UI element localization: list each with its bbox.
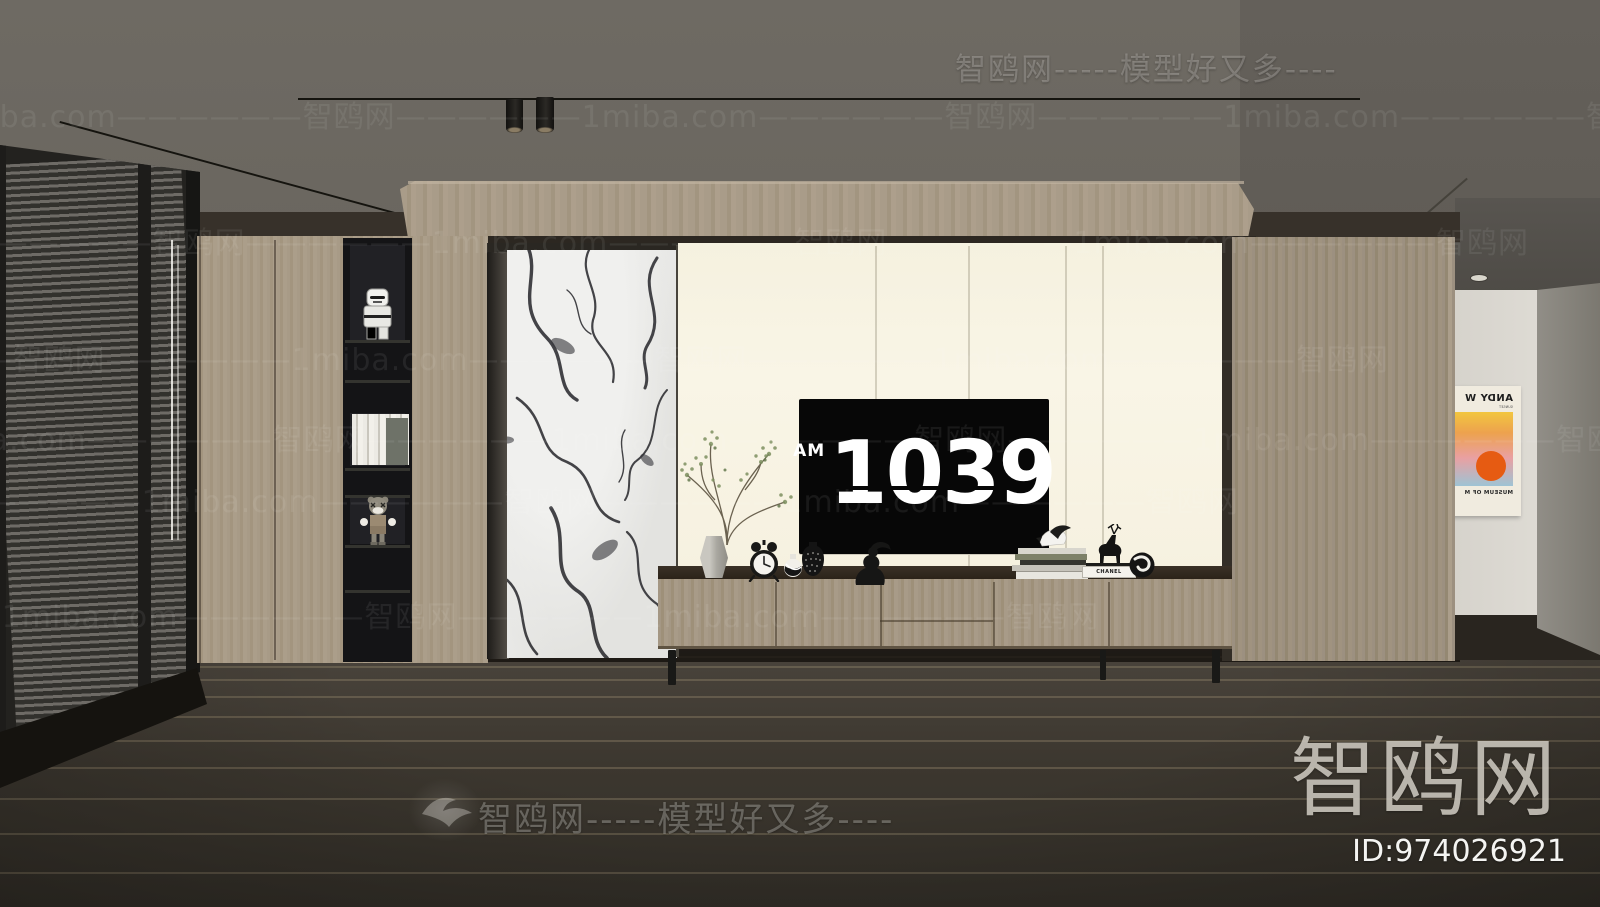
deer-figurine xyxy=(1088,524,1128,566)
model-id-label: ID:974026921 xyxy=(1270,834,1566,869)
seagull-logo-icon xyxy=(418,786,476,836)
watermark-top: 智鸥网-----模型好又多---- xyxy=(955,44,1338,89)
bird-sculpture xyxy=(1036,522,1072,550)
watermark-bottom: 智鸥网-----模型好又多---- xyxy=(478,792,894,841)
sphere-vase xyxy=(783,554,803,578)
cabinet-bottom-edge xyxy=(658,646,1232,649)
watermark-row: 1miba.com——————智鸥网——————1miba.com——————智… xyxy=(0,415,1600,459)
watermark-row: 1miba.com——————智鸥网——————1miba.com——————智… xyxy=(0,477,1239,521)
site-logo-text: 智鸥网 xyxy=(1280,733,1560,825)
hallway-downlight xyxy=(1470,274,1488,282)
watermark-row: 1miba.com——————智鸥网——————1miba.com——————智… xyxy=(0,218,1529,262)
book xyxy=(1016,571,1088,579)
watermark-row: 1miba.com——————智鸥网——————1miba.com——————智… xyxy=(0,92,1600,136)
shelf-divider xyxy=(345,468,410,471)
stormtrooper-figurine xyxy=(359,288,396,340)
cabinet-leg xyxy=(1100,650,1106,680)
lattice-vase xyxy=(801,542,825,579)
interior-render: AM 10 39 ANDY W SUNSET MUSEUM OF M xyxy=(0,0,1600,907)
watermark-row: 1miba.com——————智鸥网——————1miba.com——————智… xyxy=(0,592,1099,636)
thinker-sculpture xyxy=(846,538,892,586)
chanel-book-spine-label: CHANEL xyxy=(1096,569,1122,575)
round-ornament xyxy=(1128,550,1156,578)
hallway-door xyxy=(1537,283,1600,655)
cabinet-leg xyxy=(668,650,676,685)
watermark-row: 1miba.com——————智鸥网——————1miba.com——————智… xyxy=(0,335,1389,379)
beam-highlight xyxy=(408,181,1244,184)
cabinet-leg xyxy=(1212,650,1220,683)
cabinet-door-seam xyxy=(1108,582,1110,646)
alarm-clock xyxy=(744,540,784,582)
shelf-divider xyxy=(345,380,410,383)
